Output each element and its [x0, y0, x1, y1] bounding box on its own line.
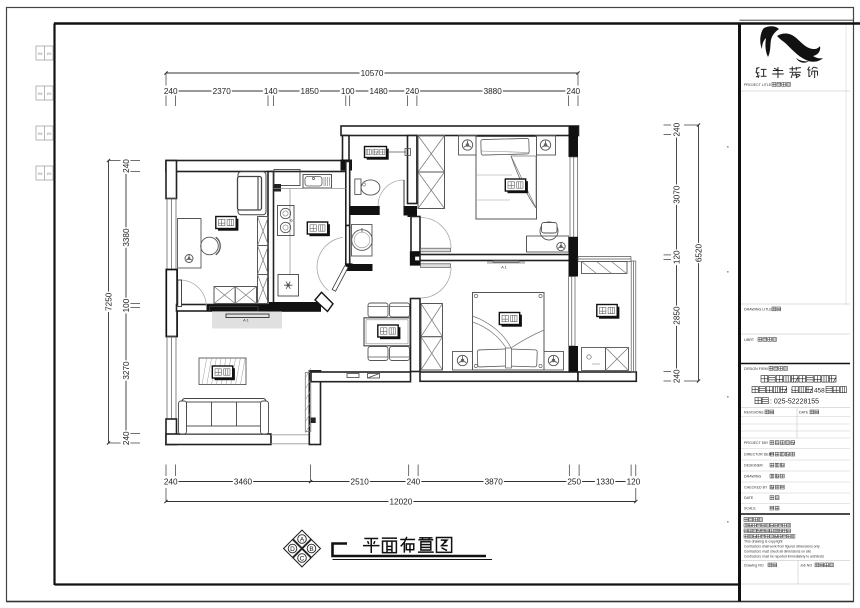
- svg-text:SCALE: SCALE: [744, 507, 756, 511]
- svg-text:4%: 4%: [38, 92, 43, 96]
- svg-text:3870: 3870: [485, 477, 504, 486]
- svg-text:Contractors must be reported i: Contractors must be reported immediately…: [744, 555, 824, 559]
- svg-text:PROJECT DIR: PROJECT DIR: [744, 441, 768, 445]
- svg-text:1850: 1850: [301, 87, 320, 96]
- svg-text:4%: 4%: [47, 52, 52, 56]
- svg-text:240: 240: [672, 369, 681, 383]
- svg-text:1330: 1330: [596, 477, 615, 486]
- svg-text:3880: 3880: [484, 87, 503, 96]
- svg-text:10570: 10570: [361, 69, 384, 78]
- svg-text:3270: 3270: [122, 361, 131, 380]
- svg-text:B: B: [309, 546, 313, 553]
- svg-text:4%: 4%: [47, 92, 52, 96]
- svg-text:Job NO: Job NO: [800, 564, 812, 568]
- svg-text:2370: 2370: [213, 87, 232, 96]
- svg-text:4%: 4%: [38, 172, 43, 176]
- svg-text:240: 240: [566, 87, 580, 96]
- svg-text:120: 120: [627, 477, 641, 486]
- svg-text:240: 240: [122, 159, 131, 173]
- svg-text:240: 240: [164, 87, 178, 96]
- svg-text:2850: 2850: [672, 306, 681, 325]
- svg-text:A 1: A 1: [243, 318, 250, 323]
- svg-text:100: 100: [122, 298, 131, 312]
- svg-text:240: 240: [122, 431, 131, 445]
- svg-text:4%: 4%: [38, 132, 43, 136]
- svg-text:DESIGNER: DESIGNER: [744, 464, 763, 468]
- svg-text:100: 100: [341, 87, 355, 96]
- svg-text:240: 240: [405, 87, 419, 96]
- svg-text:7250: 7250: [104, 292, 113, 311]
- svg-text:3460: 3460: [234, 477, 253, 486]
- svg-text:250: 250: [567, 477, 581, 486]
- svg-text:2510: 2510: [351, 477, 370, 486]
- svg-text:240: 240: [407, 477, 421, 486]
- svg-text:LIBRT: LIBRT: [744, 338, 755, 342]
- svg-text:DESIGN FIRM: DESIGN FIRM: [744, 367, 768, 371]
- svg-text:DRAWING: DRAWING: [744, 475, 761, 479]
- svg-text:6520: 6520: [694, 243, 703, 262]
- svg-text:CHECKED BY: CHECKED BY: [744, 486, 768, 490]
- svg-text:DATE: DATE: [799, 411, 809, 415]
- svg-text:DATE: DATE: [744, 496, 754, 500]
- svg-text:458: 458: [814, 387, 825, 394]
- svg-text:: 025-52228155: : 025-52228155: [770, 398, 819, 405]
- svg-text:REVISIONS: REVISIONS: [744, 411, 764, 415]
- svg-text:12020: 12020: [390, 497, 413, 506]
- svg-text:3070: 3070: [672, 185, 681, 204]
- svg-text:4%: 4%: [47, 132, 52, 136]
- svg-text:DIRECTOR DER: DIRECTOR DER: [744, 453, 772, 457]
- svg-text:240: 240: [672, 122, 681, 136]
- svg-text:1480: 1480: [369, 87, 388, 96]
- svg-text:4%: 4%: [47, 172, 52, 176]
- svg-text:Contractors shall work from fi: Contractors shall work from figured dime…: [744, 545, 820, 549]
- svg-text:A 1: A 1: [501, 265, 508, 270]
- svg-text:DRAWING LITLE: DRAWING LITLE: [744, 308, 772, 312]
- svg-text:Contractors must check all dim: Contractors must check all dimensions on…: [744, 550, 811, 554]
- svg-text:140: 140: [264, 87, 278, 96]
- svg-text:Drawing NO: Drawing NO: [744, 564, 764, 568]
- svg-text:This drawing is copyright: This drawing is copyright: [744, 540, 783, 544]
- svg-text:PROJECT LITLE: PROJECT LITLE: [744, 83, 772, 87]
- svg-text:4%: 4%: [38, 52, 43, 56]
- svg-text:C: C: [300, 556, 305, 563]
- svg-text:120: 120: [672, 250, 681, 264]
- svg-text:240: 240: [164, 477, 178, 486]
- svg-text:A: A: [300, 537, 305, 544]
- svg-text:D: D: [290, 546, 295, 553]
- svg-text:3380: 3380: [122, 228, 131, 247]
